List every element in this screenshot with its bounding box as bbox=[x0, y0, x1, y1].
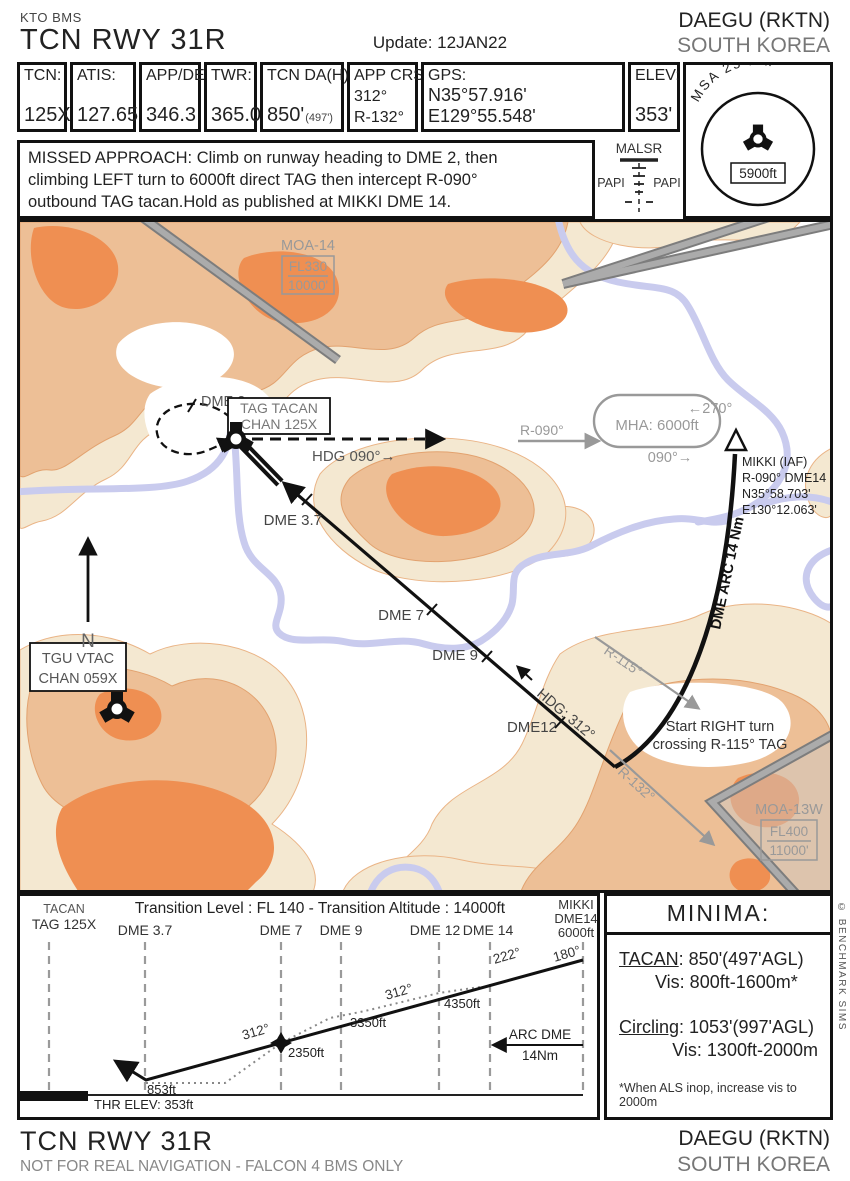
profile-tacan-ident: TAG 125X bbox=[32, 916, 97, 932]
chart-title: TCN RWY 31R bbox=[20, 24, 227, 57]
atis-label: ATIS: bbox=[77, 67, 129, 85]
plan-view-map: MOA-14 FL330 10000' MOA-13W FL400 11000'… bbox=[17, 219, 833, 893]
moa13w-name: MOA-13W bbox=[755, 802, 823, 818]
right-turn-note-line1: Start RIGHT turn bbox=[666, 719, 775, 735]
iaf-triangle-icon bbox=[726, 430, 746, 450]
mikki-lon: E130°12.063' bbox=[742, 503, 817, 517]
elev-label: ELEV: bbox=[635, 67, 673, 85]
footer-country-name: SOUTH KOREA bbox=[677, 1152, 830, 1178]
gps-label: GPS: bbox=[428, 67, 618, 85]
r090-label: R-090° bbox=[520, 422, 564, 438]
hdg312-arrow bbox=[518, 667, 532, 680]
minima-tacan-row: TACAN: 850'(497'AGL) bbox=[619, 949, 820, 970]
svg-text:MIKKI: MIKKI bbox=[558, 897, 593, 912]
svg-text:6000ft: 6000ft bbox=[558, 925, 595, 940]
da-value: 850' bbox=[267, 104, 304, 127]
papi-right-label: PAPI bbox=[653, 176, 681, 190]
footer-airport-block: DAEGU (RKTN) SOUTH KOREA bbox=[677, 1126, 830, 1179]
moa14-upper: FL330 bbox=[289, 259, 327, 274]
papi-left-label: PAPI bbox=[597, 176, 625, 190]
fix-dme9-label: DME 9 bbox=[432, 647, 478, 664]
profile-view: TACAN TAG 125X Transition Level : FL 140… bbox=[17, 893, 600, 1120]
elev-value: 353' bbox=[635, 104, 673, 127]
svg-text:312°: 312° bbox=[383, 981, 414, 1003]
mikki-radial: R-090° DME14 bbox=[742, 471, 826, 485]
svg-text:ARC DME: ARC DME bbox=[509, 1027, 571, 1042]
profile-tacan-label: TACAN bbox=[43, 902, 84, 916]
mikki-lat: N35°58.703' bbox=[742, 487, 811, 501]
svg-text:DME 14: DME 14 bbox=[463, 922, 514, 938]
transition-level-label: Transition Level : FL 140 - Transition A… bbox=[135, 900, 506, 917]
cell-appcrs: APP CRS: 312° R-132° bbox=[347, 62, 418, 132]
minima-tacan-value: : 850'(497'AGL) bbox=[679, 949, 804, 969]
thr-elev-label: THR ELEV: 353ft bbox=[94, 1097, 194, 1112]
cell-tcn: TCN: 125X bbox=[17, 62, 67, 132]
appdep-label: APP/DEP: bbox=[146, 67, 194, 85]
cell-da: TCN DA(H): 850' (497') bbox=[260, 62, 344, 132]
tgu-vtac-name: TGU VTAC bbox=[42, 651, 114, 667]
appcrs-course: 312° bbox=[354, 88, 411, 106]
fix-dme7-label: DME 7 bbox=[378, 607, 424, 624]
cell-gps: GPS: N35°57.916' E129°55.548' bbox=[421, 62, 625, 132]
header-airport-block: DAEGU (RKTN) SOUTH KOREA bbox=[677, 8, 830, 58]
hold-mha-label: MHA: 6000ft bbox=[615, 417, 699, 434]
footer-disclaimer: NOT FOR REAL NAVIGATION - FALCON 4 BMS O… bbox=[20, 1158, 403, 1176]
hold-inbound-label: 090°→ bbox=[648, 450, 693, 466]
svg-text:DME 9: DME 9 bbox=[320, 922, 363, 938]
approach-chart-page: KTO BMS TCN RWY 31R Update: 12JAN22 DAEG… bbox=[0, 0, 850, 1181]
svg-text:14Nm: 14Nm bbox=[522, 1048, 558, 1063]
cell-elev: ELEV: 353' bbox=[628, 62, 680, 132]
svg-text:DME 3.7: DME 3.7 bbox=[118, 922, 173, 938]
minima-circling-vis: Vis: 1300ft-2000m bbox=[619, 1040, 820, 1061]
minima-circling-row: Circling: 1053'(997'AGL) bbox=[619, 1017, 820, 1038]
moa14-label: MOA-14 FL330 10000' bbox=[281, 238, 335, 294]
terrain-layer bbox=[20, 222, 830, 890]
tgu-vtac-channel: CHAN 059X bbox=[39, 671, 118, 687]
fix-dme12-label: DME12 bbox=[507, 719, 557, 736]
tag-tacan-channel: CHAN 125X bbox=[241, 416, 318, 432]
missed-approach-box: MISSED APPROACH: Climb on runway heading… bbox=[17, 140, 595, 219]
holding-pattern: R-090° ←270° MHA: 6000ft 090°→ bbox=[518, 395, 746, 466]
tacan-icon bbox=[743, 125, 773, 151]
missed-line3: outbound TAG tacan.Hold as published at … bbox=[28, 192, 584, 214]
twr-value: 365.0 bbox=[211, 104, 250, 127]
publisher-label: KTO BMS bbox=[20, 10, 82, 25]
airport-name: DAEGU (RKTN) bbox=[677, 8, 830, 33]
hdg090-label: HDG 090°→ bbox=[312, 448, 396, 465]
profile-mikki-label: MIKKI DME14 6000ft bbox=[554, 897, 597, 940]
alt-4350-label: 4350ft bbox=[444, 996, 481, 1011]
right-turn-note-line2: crossing R-115° TAG bbox=[653, 737, 788, 753]
appcrs-radial: R-132° bbox=[354, 109, 411, 127]
da-agl-note: (497') bbox=[305, 112, 333, 124]
svg-text:312°: 312° bbox=[240, 1021, 271, 1043]
msa-panel: MSA 25 Nm 5900ft bbox=[683, 62, 833, 219]
cell-atis: ATIS: 127.65 bbox=[70, 62, 136, 132]
gps-lon: E129°55.548' bbox=[428, 106, 618, 127]
mikki-name: MIKKI (IAF) bbox=[742, 455, 807, 469]
profile-fix-gridlines bbox=[49, 942, 583, 1095]
fix-dme37-label: DME 3.7 bbox=[264, 512, 322, 529]
moa14-lower: 10000' bbox=[288, 278, 328, 293]
data-strip: TCN: 125X ATIS: 127.65 APP/DEP: 346.3 TW… bbox=[17, 62, 680, 132]
minima-panel: MINIMA: TACAN: 850'(497'AGL) Vis: 800ft-… bbox=[604, 893, 833, 1120]
minima-tacan-label: TACAN bbox=[619, 949, 679, 969]
north-label: N bbox=[81, 631, 95, 652]
tcn-value: 125X bbox=[24, 104, 60, 127]
moa13w-upper: FL400 bbox=[770, 824, 808, 839]
svg-text:DME14: DME14 bbox=[554, 911, 597, 926]
msa-altitude: 5900ft bbox=[739, 166, 777, 181]
da-label: TCN DA(H): bbox=[267, 67, 337, 85]
alt-3350-label: 3350ft bbox=[350, 1015, 387, 1030]
copyright-label: © BENCHMARK SIMS bbox=[836, 902, 847, 1031]
update-date: Update: 12JAN22 bbox=[330, 33, 550, 53]
minima-tacan-vis: Vis: 800ft-1600m* bbox=[655, 972, 820, 993]
profile-runway-icon bbox=[20, 1091, 88, 1101]
profile-fix-labels: DME 3.7 DME 7 DME 9 DME 12 DME 14 bbox=[118, 922, 514, 938]
footer-airport-name: DAEGU (RKTN) bbox=[677, 1126, 830, 1152]
arc-dme-annotation: ARC DME 14Nm bbox=[494, 1027, 583, 1063]
minima-title: MINIMA: bbox=[607, 896, 830, 935]
tag-tacan-name: TAG TACAN bbox=[240, 400, 318, 416]
gps-lat: N35°57.916' bbox=[428, 85, 618, 106]
moa13w-lower: 11000' bbox=[769, 843, 808, 858]
svg-text:DME 7: DME 7 bbox=[260, 922, 303, 938]
hold-outbound-label: ←270° bbox=[688, 401, 733, 417]
cell-appdep: APP/DEP: 346.3 bbox=[139, 62, 201, 132]
malsr-label: MALSR bbox=[616, 141, 663, 156]
minima-circling-value: : 1053'(997'AGL) bbox=[679, 1017, 814, 1037]
missed-line1: MISSED APPROACH: Climb on runway heading… bbox=[28, 148, 584, 170]
alt-2350-label: 2350ft bbox=[288, 1045, 325, 1060]
msa-circle bbox=[702, 93, 814, 205]
twr-label: TWR: bbox=[211, 67, 250, 85]
atis-value: 127.65 bbox=[77, 104, 129, 127]
svg-text:DME 12: DME 12 bbox=[410, 922, 461, 938]
lighting-panel: MALSR PAPI PAPI bbox=[595, 140, 683, 219]
minima-circling-label: Circling bbox=[619, 1017, 679, 1037]
missed-line2: climbing LEFT turn to 6000ft direct TAG … bbox=[28, 170, 584, 192]
moa14-name: MOA-14 bbox=[281, 238, 335, 254]
footer-chart-title: TCN RWY 31R bbox=[20, 1126, 213, 1157]
minima-als-note: *When ALS inop, increase vis to 2000m bbox=[619, 1081, 820, 1109]
appdep-value: 346.3 bbox=[146, 104, 194, 127]
north-arrow-icon: N bbox=[81, 540, 95, 652]
tcn-label: TCN: bbox=[24, 67, 60, 85]
country-name: SOUTH KOREA bbox=[677, 33, 830, 58]
cell-twr: TWR: 365.0 bbox=[204, 62, 257, 132]
svg-text:222°: 222° bbox=[491, 945, 522, 967]
appcrs-label: APP CRS: bbox=[354, 67, 411, 85]
